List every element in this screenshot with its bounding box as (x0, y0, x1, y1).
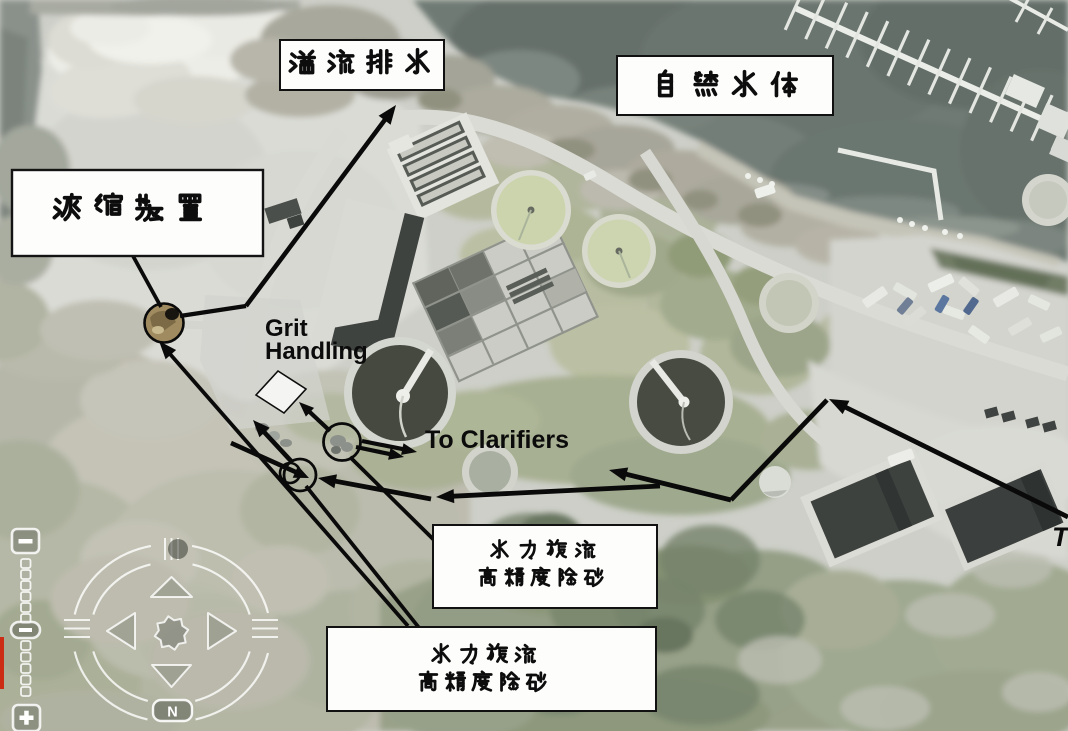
svg-text:N: N (167, 705, 177, 721)
svg-text:To Clarifiers: To Clarifiers (425, 426, 569, 454)
svg-text:T: T (1052, 522, 1068, 552)
svg-text:Handling: Handling (265, 338, 368, 365)
